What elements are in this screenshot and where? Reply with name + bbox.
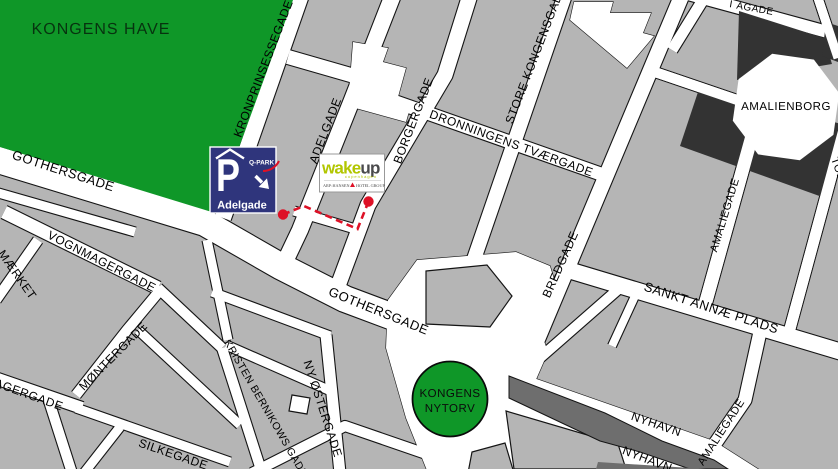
svg-text:copenhagen: copenhagen xyxy=(345,175,377,180)
svg-text:KONGENS HAVE: KONGENS HAVE xyxy=(32,21,171,38)
svg-text:ARP-HANSEN: ARP-HANSEN xyxy=(323,184,350,189)
svg-text:P: P xyxy=(216,149,240,201)
svg-text:NYTORV: NYTORV xyxy=(425,403,476,415)
svg-text:AMALIENBORG: AMALIENBORG xyxy=(741,101,831,113)
svg-text:HOTEL GROUP: HOTEL GROUP xyxy=(356,184,385,189)
svg-text:Adelgade: Adelgade xyxy=(217,200,267,212)
svg-text:Q-PARK: Q-PARK xyxy=(249,159,274,167)
svg-text:KONGENS: KONGENS xyxy=(419,388,480,400)
